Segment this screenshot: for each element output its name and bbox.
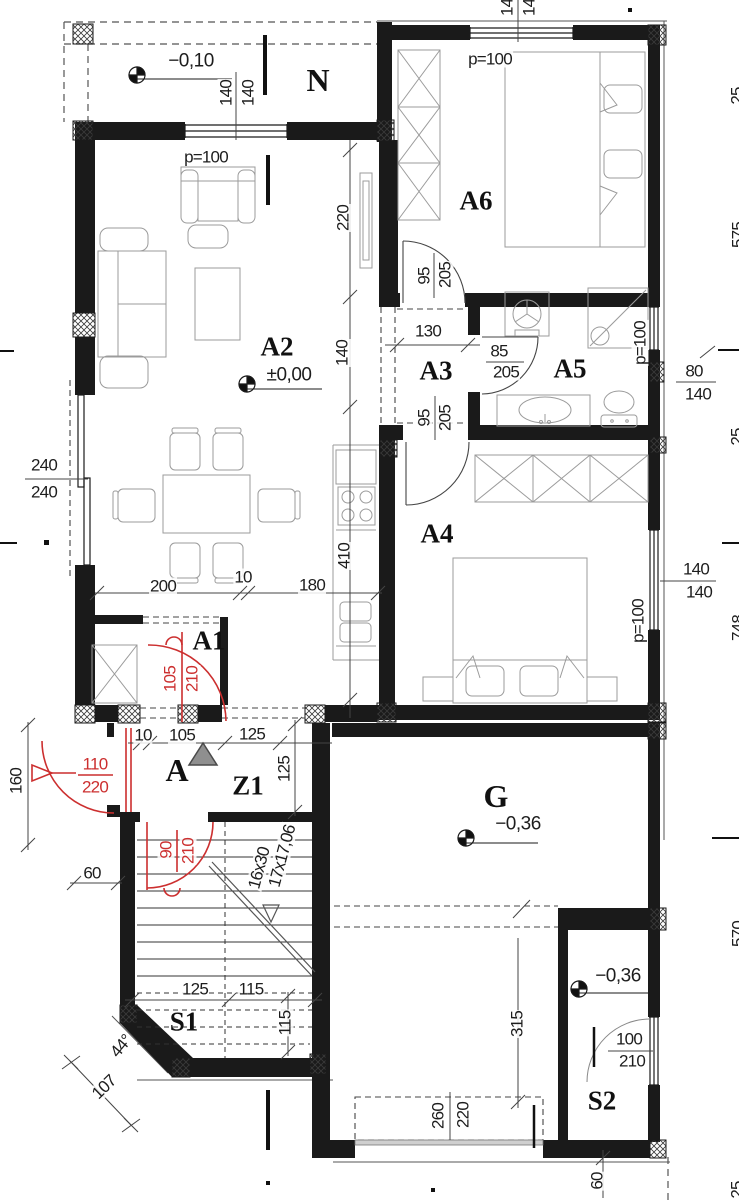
dim-label: 105 <box>168 727 196 744</box>
dim-label: 95 <box>416 266 433 285</box>
dim-label-red: 105 <box>162 665 179 693</box>
dim-label: 85 <box>489 343 508 360</box>
dim-label: p=100 <box>183 149 229 166</box>
dim-label: 125 <box>276 755 293 783</box>
dim-label: 60 <box>82 865 101 882</box>
dim-label: 107 <box>88 1071 120 1103</box>
dim-label: 140 <box>684 386 712 403</box>
dim-label: 260 <box>430 1102 447 1130</box>
dim-label: 205 <box>437 261 454 289</box>
room-label-g: G <box>484 780 509 812</box>
dim-label: 80 <box>684 363 703 380</box>
dim-label-red: 220 <box>81 779 109 796</box>
room-label-a1: A1 <box>193 628 226 655</box>
dim-label: 240 <box>30 457 58 474</box>
dim-label: 25 <box>729 86 739 105</box>
room-label-n: N <box>306 64 329 96</box>
dim-label: 25 <box>729 427 739 446</box>
dim-label: 410 <box>336 542 353 570</box>
dim-label: 210 <box>618 1053 646 1070</box>
dim-label: 748 <box>730 614 739 642</box>
dim-label: 140 <box>682 561 710 578</box>
dim-label: 140 <box>685 584 713 601</box>
dim-label: 100 <box>615 1031 643 1048</box>
dim-label: p=100 <box>630 598 647 644</box>
dim-label: 575 <box>730 221 739 249</box>
dim-label: 44° <box>106 1031 135 1061</box>
dim-label: 140 <box>499 0 516 17</box>
room-label-a4: A4 <box>421 521 454 548</box>
elevation-label: ±0,00 <box>267 366 312 385</box>
dim-label-red: 110 <box>82 756 109 773</box>
dim-label: 220 <box>335 204 352 232</box>
room-label-z1: Z1 <box>232 773 264 800</box>
floor-plan-canvas: N−0,10140140p=100140140p=100A62209520513… <box>0 0 739 1200</box>
dim-label: 115 <box>277 1010 294 1037</box>
dim-label: 140 <box>240 79 257 107</box>
dim-label: 60 <box>589 1171 606 1190</box>
dim-label: 125 <box>238 726 266 743</box>
dim-label: 25 <box>729 1180 739 1199</box>
dim-label: 240 <box>30 484 58 501</box>
dim-label: p=100 <box>632 320 649 366</box>
dim-label: 125 <box>181 981 209 998</box>
elevation-label: −0,36 <box>595 967 641 986</box>
dim-label: 220 <box>455 1101 472 1129</box>
dim-label: 160 <box>8 767 25 795</box>
dim-label: p=100 <box>467 51 513 68</box>
room-label-a2: A2 <box>261 334 294 361</box>
dim-label: 205 <box>492 364 520 381</box>
elevation-label: −0,36 <box>495 815 541 834</box>
room-label-s1: S1 <box>170 1009 199 1036</box>
elevation-label: −0,10 <box>168 52 214 71</box>
dim-label-red: 90 <box>158 840 175 859</box>
dim-label: 140 <box>334 339 351 367</box>
dim-label: 205 <box>437 404 454 432</box>
dim-label: 140 <box>218 79 235 107</box>
dim-label: 180 <box>298 577 326 594</box>
dim-label-red: 210 <box>184 665 201 693</box>
dim-label: 315 <box>509 1010 526 1038</box>
room-label-a5: A5 <box>554 356 587 383</box>
dim-label: 95 <box>416 408 433 427</box>
dim-label: 140 <box>521 0 538 17</box>
dim-label: 130 <box>414 323 442 340</box>
dim-label-red: 210 <box>180 837 197 865</box>
room-label-a6: A6 <box>460 188 493 215</box>
room-label-a3: A3 <box>420 358 453 385</box>
dim-label: 200 <box>149 578 177 595</box>
dim-label: 115 <box>238 981 265 998</box>
dim-label: 10 <box>233 569 252 586</box>
room-label-a: A <box>165 754 188 786</box>
dim-label: 10 <box>133 727 152 744</box>
dim-label: 570 <box>730 920 739 948</box>
room-label-s2: S2 <box>588 1088 617 1115</box>
annotation-layer: N−0,10140140p=100140140p=100A62209520513… <box>0 0 739 1200</box>
